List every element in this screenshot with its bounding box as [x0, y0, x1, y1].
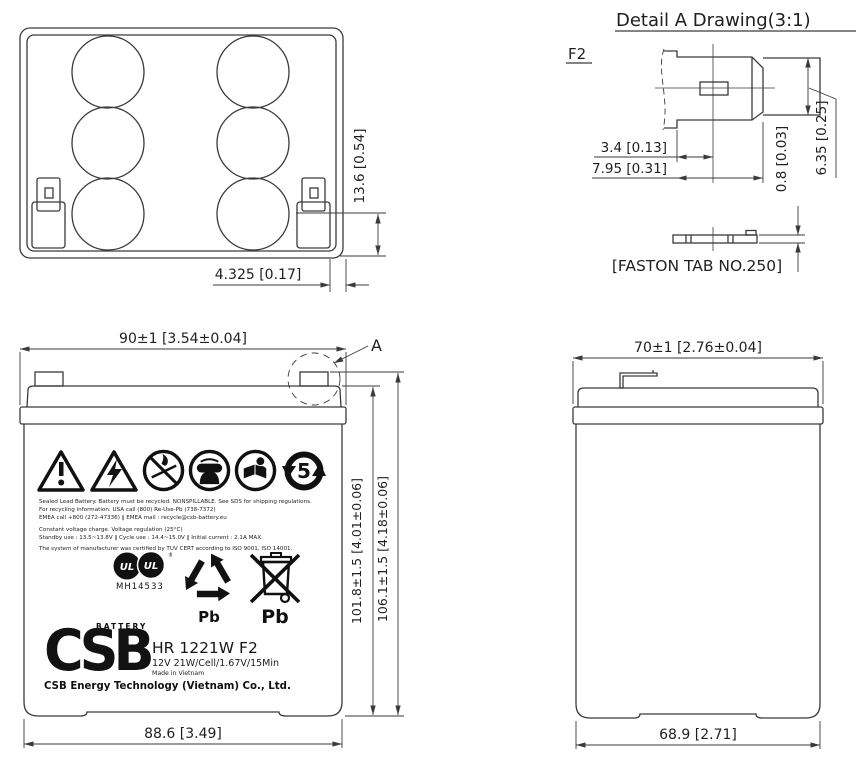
model-number: HR 1221W F2 — [152, 639, 258, 657]
detail-a-circle — [288, 353, 340, 405]
detail-heading: Detail A Drawing(3:1) — [616, 10, 811, 31]
battery-label: 5 Sealed Lead Battery. Battery must be r… — [24, 424, 342, 716]
dim-front-bottom-width: 88.6 [3.49] — [144, 726, 222, 742]
dim-detail-tab-length: 7.95 [0.31] — [592, 161, 667, 177]
warning-electric-icon — [89, 449, 139, 493]
side-body — [576, 424, 820, 718]
front-lid — [27, 386, 341, 407]
vent-cap — [217, 107, 289, 179]
dim-top-terminal-offset: 4.325 [0.17] — [215, 267, 302, 283]
ul-file-number: MH14533 — [116, 582, 164, 592]
notice-line-2: For recycling information: USA call (800… — [39, 506, 312, 514]
dim-detail-offset-center: 3.4 [0.13] — [601, 140, 667, 156]
notice-line-1: Sealed Lead Battery. Battery must be rec… — [39, 498, 312, 506]
vent-cap — [72, 107, 144, 179]
faston-caption: [FASTON TAB NO.250] — [612, 257, 782, 275]
ul-mark-icon: UL UL ® — [112, 551, 172, 582]
rohs-epup-icon: 5 — [280, 448, 328, 493]
terminal-left — [32, 178, 65, 248]
csb-logo: CSB — [44, 630, 150, 672]
warning-icon-row: 5 — [36, 448, 328, 493]
detail-a-marker: A — [371, 336, 382, 355]
dim-top-terminal-height: 13.6 [0.54] — [352, 129, 368, 204]
warning-general-icon — [36, 449, 86, 493]
recycle-pb-icon — [180, 552, 238, 606]
label-notice-text: Sealed Lead Battery. Battery must be rec… — [39, 498, 312, 553]
front-terminal-left — [35, 372, 63, 386]
terminal-code-label: F2 — [568, 45, 586, 63]
vent-cap — [217, 36, 289, 108]
origin-text: Made in Vietnam — [152, 670, 204, 677]
recycle-pb-text: Pb — [180, 608, 238, 626]
side-view: 70±1 [2.76±0.04] 68.9 [2.71] — [573, 340, 823, 749]
front-terminal-right — [300, 372, 328, 386]
dim-side-width: 70±1 [2.76±0.04] — [634, 340, 762, 356]
battery-drawing-sheet: 13.6 [0.54] 4.325 [0.17] A 90±1 [3.54±0.… — [0, 0, 860, 760]
notice-line-3: EMEA call +800 (272-47336) ‖ EMEA mail :… — [39, 514, 312, 522]
vent-cap — [72, 36, 144, 108]
svg-text:®: ® — [168, 552, 172, 559]
top-view-case-outline — [20, 28, 343, 258]
side-lid — [578, 388, 818, 407]
dim-detail-tab-thickness: 0.8 [0.03] — [774, 126, 790, 192]
dim-front-case-height: 101.8±1.5 [4.01±0.06] — [349, 478, 364, 624]
terminal-tab-end — [763, 58, 820, 115]
break-line — [661, 49, 665, 130]
terminal-hole — [700, 82, 728, 95]
eye-protection-icon — [188, 449, 231, 492]
company-name: CSB Energy Technology (Vietnam) Co., Ltd… — [44, 681, 291, 692]
charge-line-1: Constant voltage charge. Voltage regulat… — [39, 526, 312, 534]
dim-front-width: 90±1 [3.54±0.04] — [119, 331, 247, 347]
charge-line-2: Standby use : 13.5~13.8V ‖ Cycle use : 1… — [39, 534, 312, 542]
svg-text:UL: UL — [144, 561, 159, 572]
vent-cap — [217, 178, 289, 250]
bin-pb-text: Pb — [248, 606, 302, 628]
read-instructions-icon — [234, 449, 277, 492]
side-terminal-tab — [620, 373, 657, 388]
vent-cap — [72, 178, 144, 250]
dim-detail-tab-width: 6.35 [0.25] — [814, 101, 830, 176]
no-fire-icon — [142, 449, 185, 492]
terminal-section — [664, 51, 763, 128]
detail-a-view: Detail A Drawing(3:1) F2 3.4 [0.13] 7.95… — [566, 10, 856, 275]
rohs-years-text: 5 — [297, 459, 311, 483]
model-spec: 12V 21W/Cell/1.67V/15Min — [152, 658, 279, 669]
dim-side-bottom-width: 68.9 [2.71] — [659, 727, 737, 743]
no-trash-icon — [248, 550, 302, 606]
side-band — [573, 407, 823, 424]
front-band — [20, 407, 346, 424]
dim-front-total-height: 106.1±1.5 [4.18±0.06] — [375, 476, 390, 622]
top-view: 13.6 [0.54] 4.325 [0.17] — [20, 28, 386, 292]
svg-text:UL: UL — [120, 562, 135, 573]
